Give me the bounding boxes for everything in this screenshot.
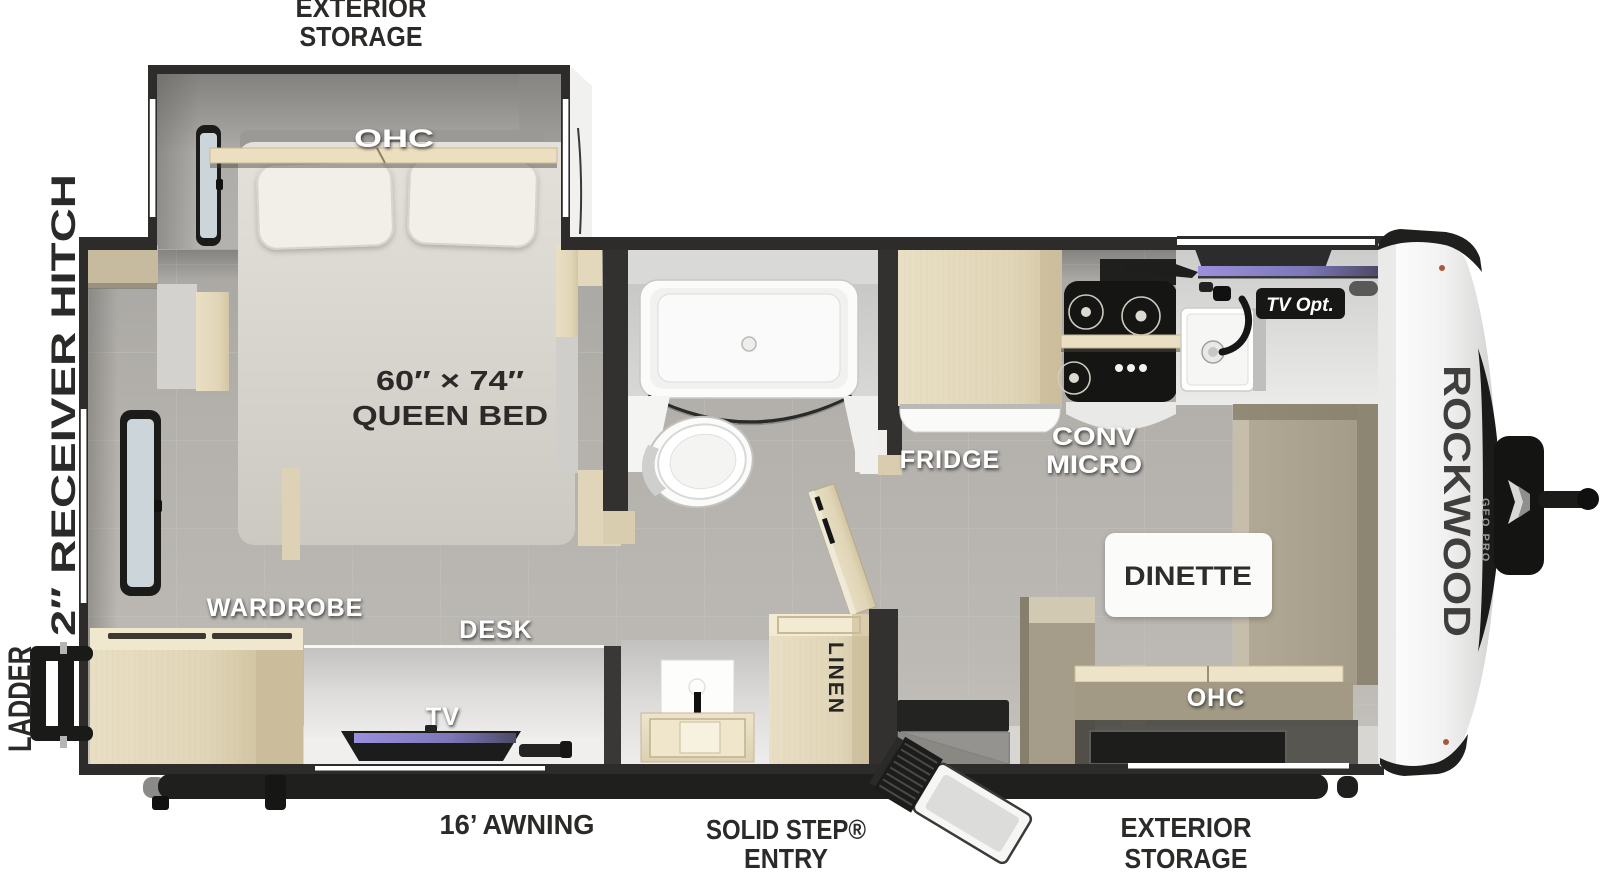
svg-text:ROCKWOOD: ROCKWOOD [1435, 365, 1477, 637]
svg-text:STORAGE: STORAGE [300, 21, 423, 52]
svg-text:OHC: OHC [354, 125, 434, 153]
svg-text:DINETTE: DINETTE [1124, 561, 1252, 591]
svg-text:WARDROBE: WARDROBE [207, 594, 364, 622]
svg-text:SOLID STEP®: SOLID STEP® [706, 814, 866, 845]
svg-text:60″ × 74″: 60″ × 74″ [376, 365, 524, 396]
svg-text:LADDER: LADDER [2, 646, 38, 752]
svg-text:OHC: OHC [1187, 684, 1246, 712]
svg-text:EXTERIOR: EXTERIOR [1121, 812, 1252, 843]
svg-text:MICRO: MICRO [1046, 451, 1142, 479]
svg-text:EXTERIOR: EXTERIOR [296, 0, 427, 23]
svg-text:TV Opt.: TV Opt. [1266, 295, 1334, 316]
svg-text:FRIDGE: FRIDGE [900, 446, 1000, 474]
svg-text:QUEEN BED: QUEEN BED [352, 400, 548, 431]
svg-text:CONV: CONV [1052, 423, 1136, 451]
svg-text:2″ RECEIVER HITCH: 2″ RECEIVER HITCH [45, 174, 83, 636]
svg-text:ENTRY: ENTRY [744, 843, 828, 874]
svg-text:GEO PRO: GEO PRO [1479, 498, 1491, 563]
svg-text:16’ AWNING: 16’ AWNING [440, 809, 595, 840]
svg-text:LINEN: LINEN [824, 642, 847, 715]
svg-text:DESK: DESK [459, 616, 532, 644]
svg-text:STORAGE: STORAGE [1125, 843, 1248, 874]
